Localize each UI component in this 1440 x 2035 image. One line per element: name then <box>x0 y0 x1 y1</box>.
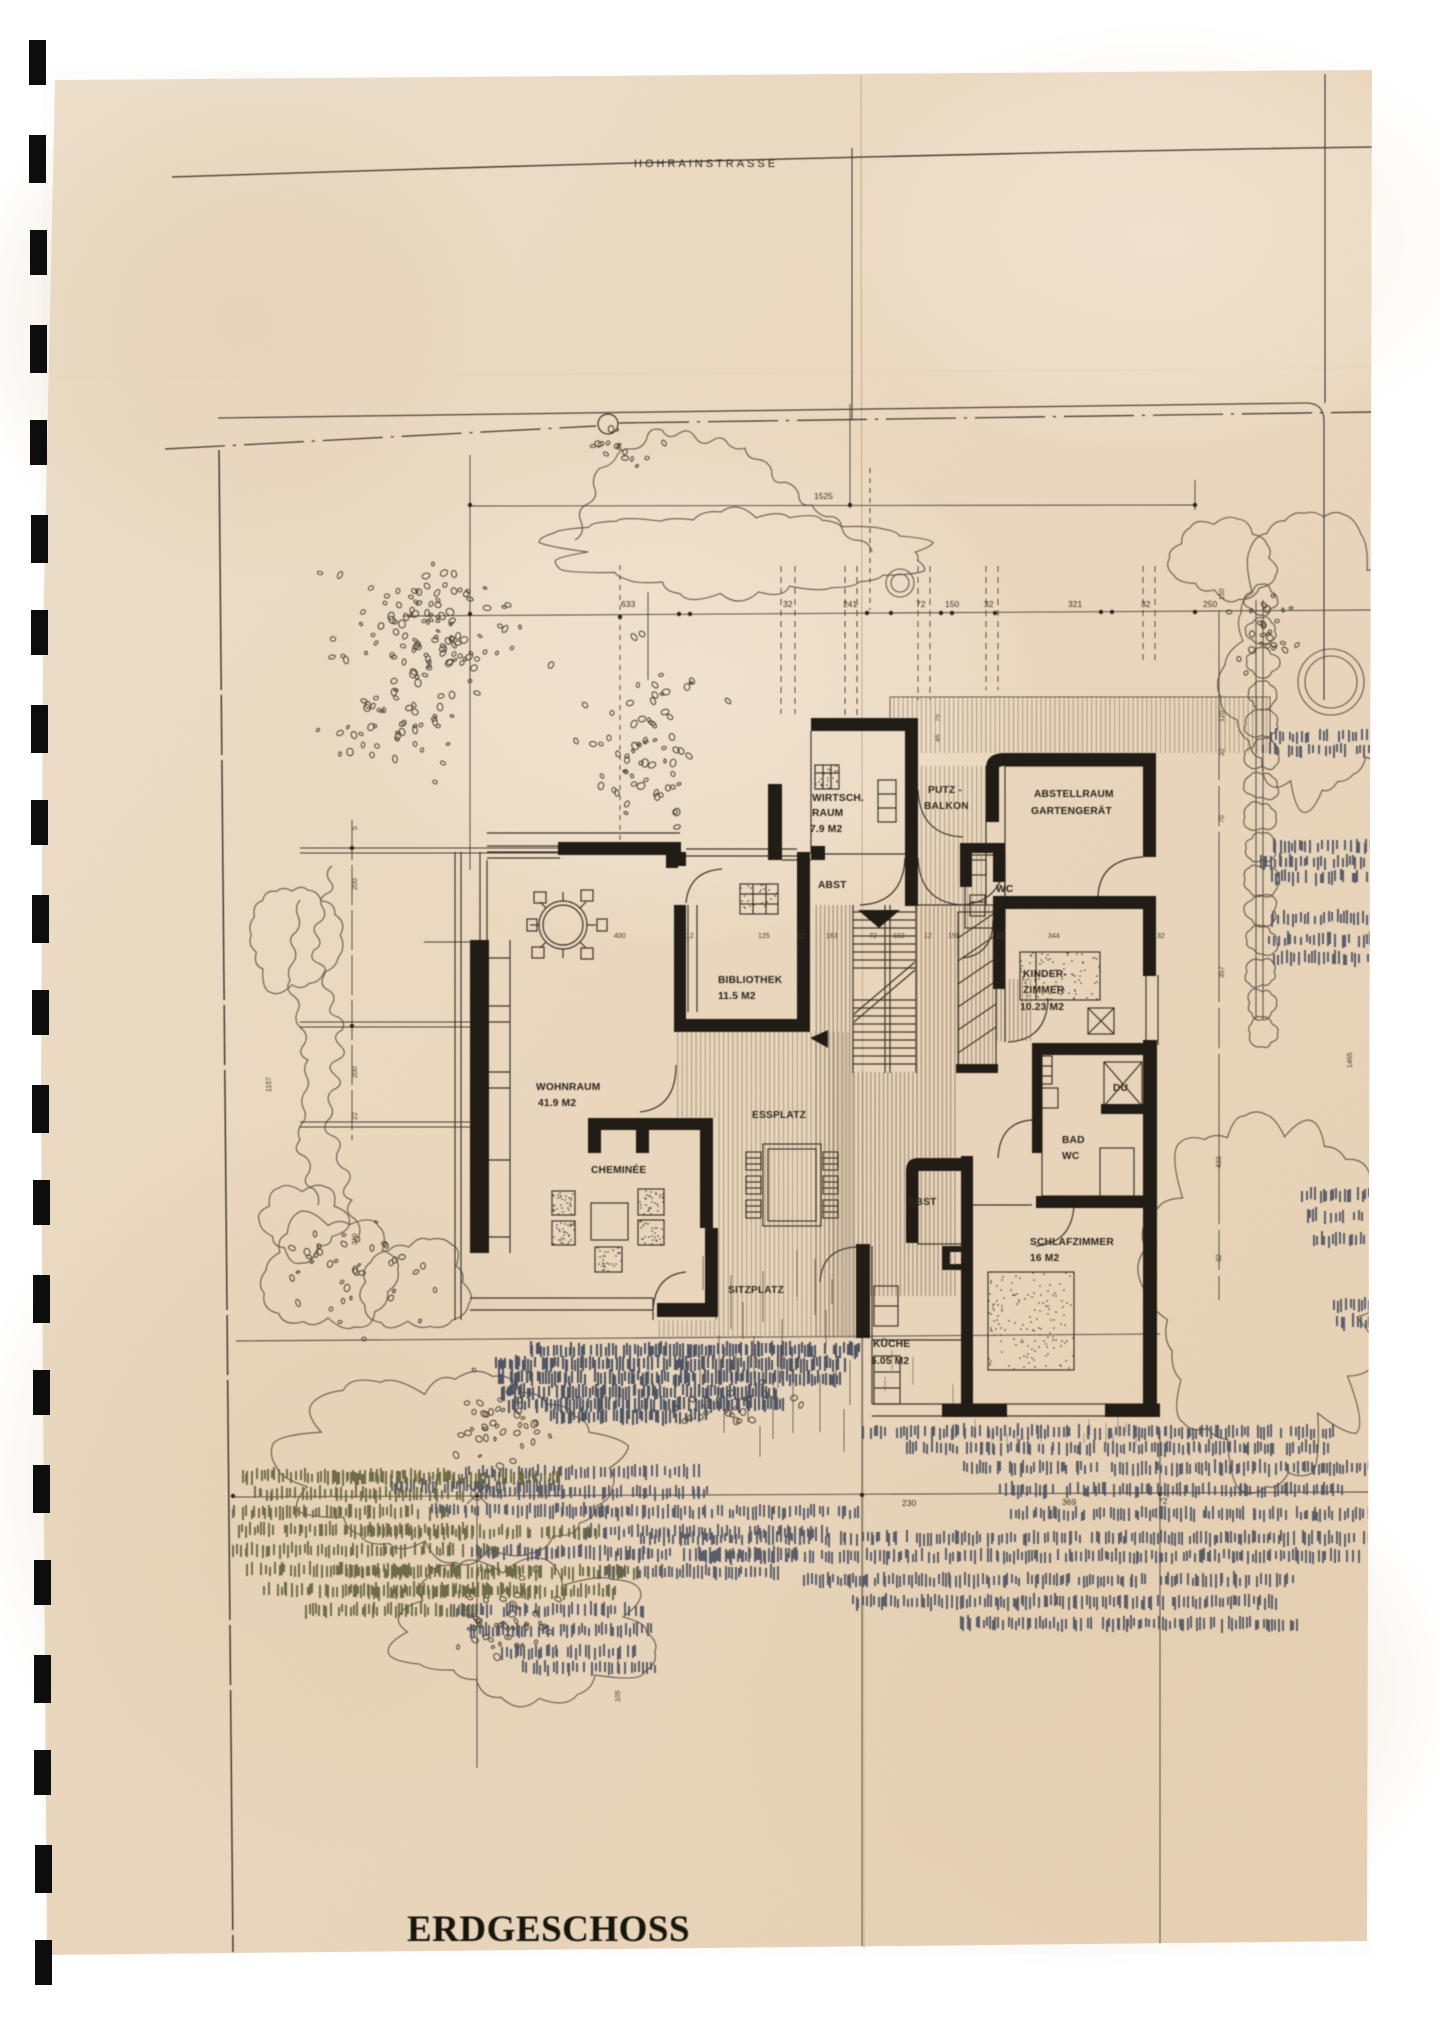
svg-text:250: 250 <box>1203 599 1217 609</box>
svg-text:WOHNRAUM: WOHNRAUM <box>536 1082 600 1093</box>
svg-text:70: 70 <box>1219 815 1226 823</box>
svg-text:105: 105 <box>615 1690 622 1702</box>
svg-text:433: 433 <box>1216 1156 1223 1168</box>
svg-text:ABSTELLRAUM: ABSTELLRAUM <box>1034 789 1114 800</box>
svg-text:72: 72 <box>1158 1496 1168 1506</box>
svg-text:125: 125 <box>758 933 770 940</box>
svg-text:WC: WC <box>1062 1151 1080 1162</box>
svg-text:633: 633 <box>621 599 635 609</box>
svg-text:200: 200 <box>352 878 359 890</box>
svg-text:BIBLIOTHEK: BIBLIOTHEK <box>718 975 783 986</box>
svg-text:32: 32 <box>984 599 994 609</box>
svg-text:241: 241 <box>843 599 857 609</box>
svg-text:CHEMINÉE: CHEMINÉE <box>591 1163 646 1176</box>
svg-text:163: 163 <box>826 933 838 940</box>
svg-text:BAD: BAD <box>1062 1135 1085 1146</box>
svg-text:WIRTSCH.: WIRTSCH. <box>812 793 864 804</box>
svg-text:SITZPLATZ: SITZPLATZ <box>728 1285 784 1296</box>
svg-text:SCHLAFZIMMER: SCHLAFZIMMER <box>1030 1237 1114 1248</box>
svg-text:HOHRAINSTRASSE: HOHRAINSTRASSE <box>634 158 778 170</box>
svg-text:DU: DU <box>1113 1083 1128 1094</box>
svg-text:1157: 1157 <box>266 1077 273 1092</box>
svg-text:22: 22 <box>352 1112 359 1120</box>
svg-text:357: 357 <box>1219 966 1226 978</box>
svg-text:PUTZ -: PUTZ - <box>928 785 962 796</box>
svg-text:6.05 M2: 6.05 M2 <box>871 1356 909 1367</box>
svg-text:11.5 M2: 11.5 M2 <box>718 991 756 1002</box>
svg-text:16 M2: 16 M2 <box>1030 1253 1059 1264</box>
svg-text:344: 344 <box>1048 933 1060 940</box>
svg-text:10.23 M2: 10.23 M2 <box>1020 1002 1064 1013</box>
svg-text:WC: WC <box>996 884 1014 895</box>
svg-text:7.9 M2: 7.9 M2 <box>810 824 842 835</box>
svg-text:ABST: ABST <box>908 1197 937 1208</box>
svg-text:32: 32 <box>783 599 793 609</box>
svg-text:12: 12 <box>924 933 932 940</box>
svg-text:KINDER-: KINDER- <box>1023 969 1067 980</box>
svg-text:5: 5 <box>352 826 359 830</box>
svg-text:BALKON: BALKON <box>924 801 969 812</box>
svg-text:12: 12 <box>797 933 805 940</box>
svg-text:12: 12 <box>686 933 694 940</box>
svg-text:RAUM: RAUM <box>812 808 843 819</box>
svg-text:230: 230 <box>902 1498 916 1508</box>
svg-text:KÜCHE: KÜCHE <box>873 1337 910 1350</box>
svg-text:369: 369 <box>1062 1497 1076 1507</box>
svg-text:ERDGESCHOSS: ERDGESCHOSS <box>407 1909 690 1950</box>
svg-text:GARTENGERÄT: GARTENGERÄT <box>1031 804 1112 817</box>
svg-text:150: 150 <box>948 933 960 940</box>
svg-text:150: 150 <box>945 599 959 609</box>
svg-text:32: 32 <box>1216 1254 1223 1262</box>
svg-text:72: 72 <box>869 933 877 940</box>
svg-text:ABST: ABST <box>818 880 847 891</box>
svg-text:32: 32 <box>1141 599 1151 609</box>
svg-text:200: 200 <box>352 1066 359 1078</box>
svg-text:72: 72 <box>916 599 926 609</box>
svg-text:102: 102 <box>893 933 905 940</box>
svg-text:310: 310 <box>352 1233 359 1245</box>
svg-text:32: 32 <box>1157 933 1165 940</box>
svg-text:ESSPLATZ: ESSPLATZ <box>752 1110 806 1121</box>
svg-text:12: 12 <box>996 933 1004 940</box>
svg-text:1525: 1525 <box>814 491 833 501</box>
svg-text:41.9 M2: 41.9 M2 <box>538 1098 576 1109</box>
svg-text:321: 321 <box>1068 599 1082 609</box>
svg-text:ZIMMER: ZIMMER <box>1023 985 1065 996</box>
svg-text:400: 400 <box>614 933 626 940</box>
svg-text:1465: 1465 <box>1347 1052 1354 1068</box>
